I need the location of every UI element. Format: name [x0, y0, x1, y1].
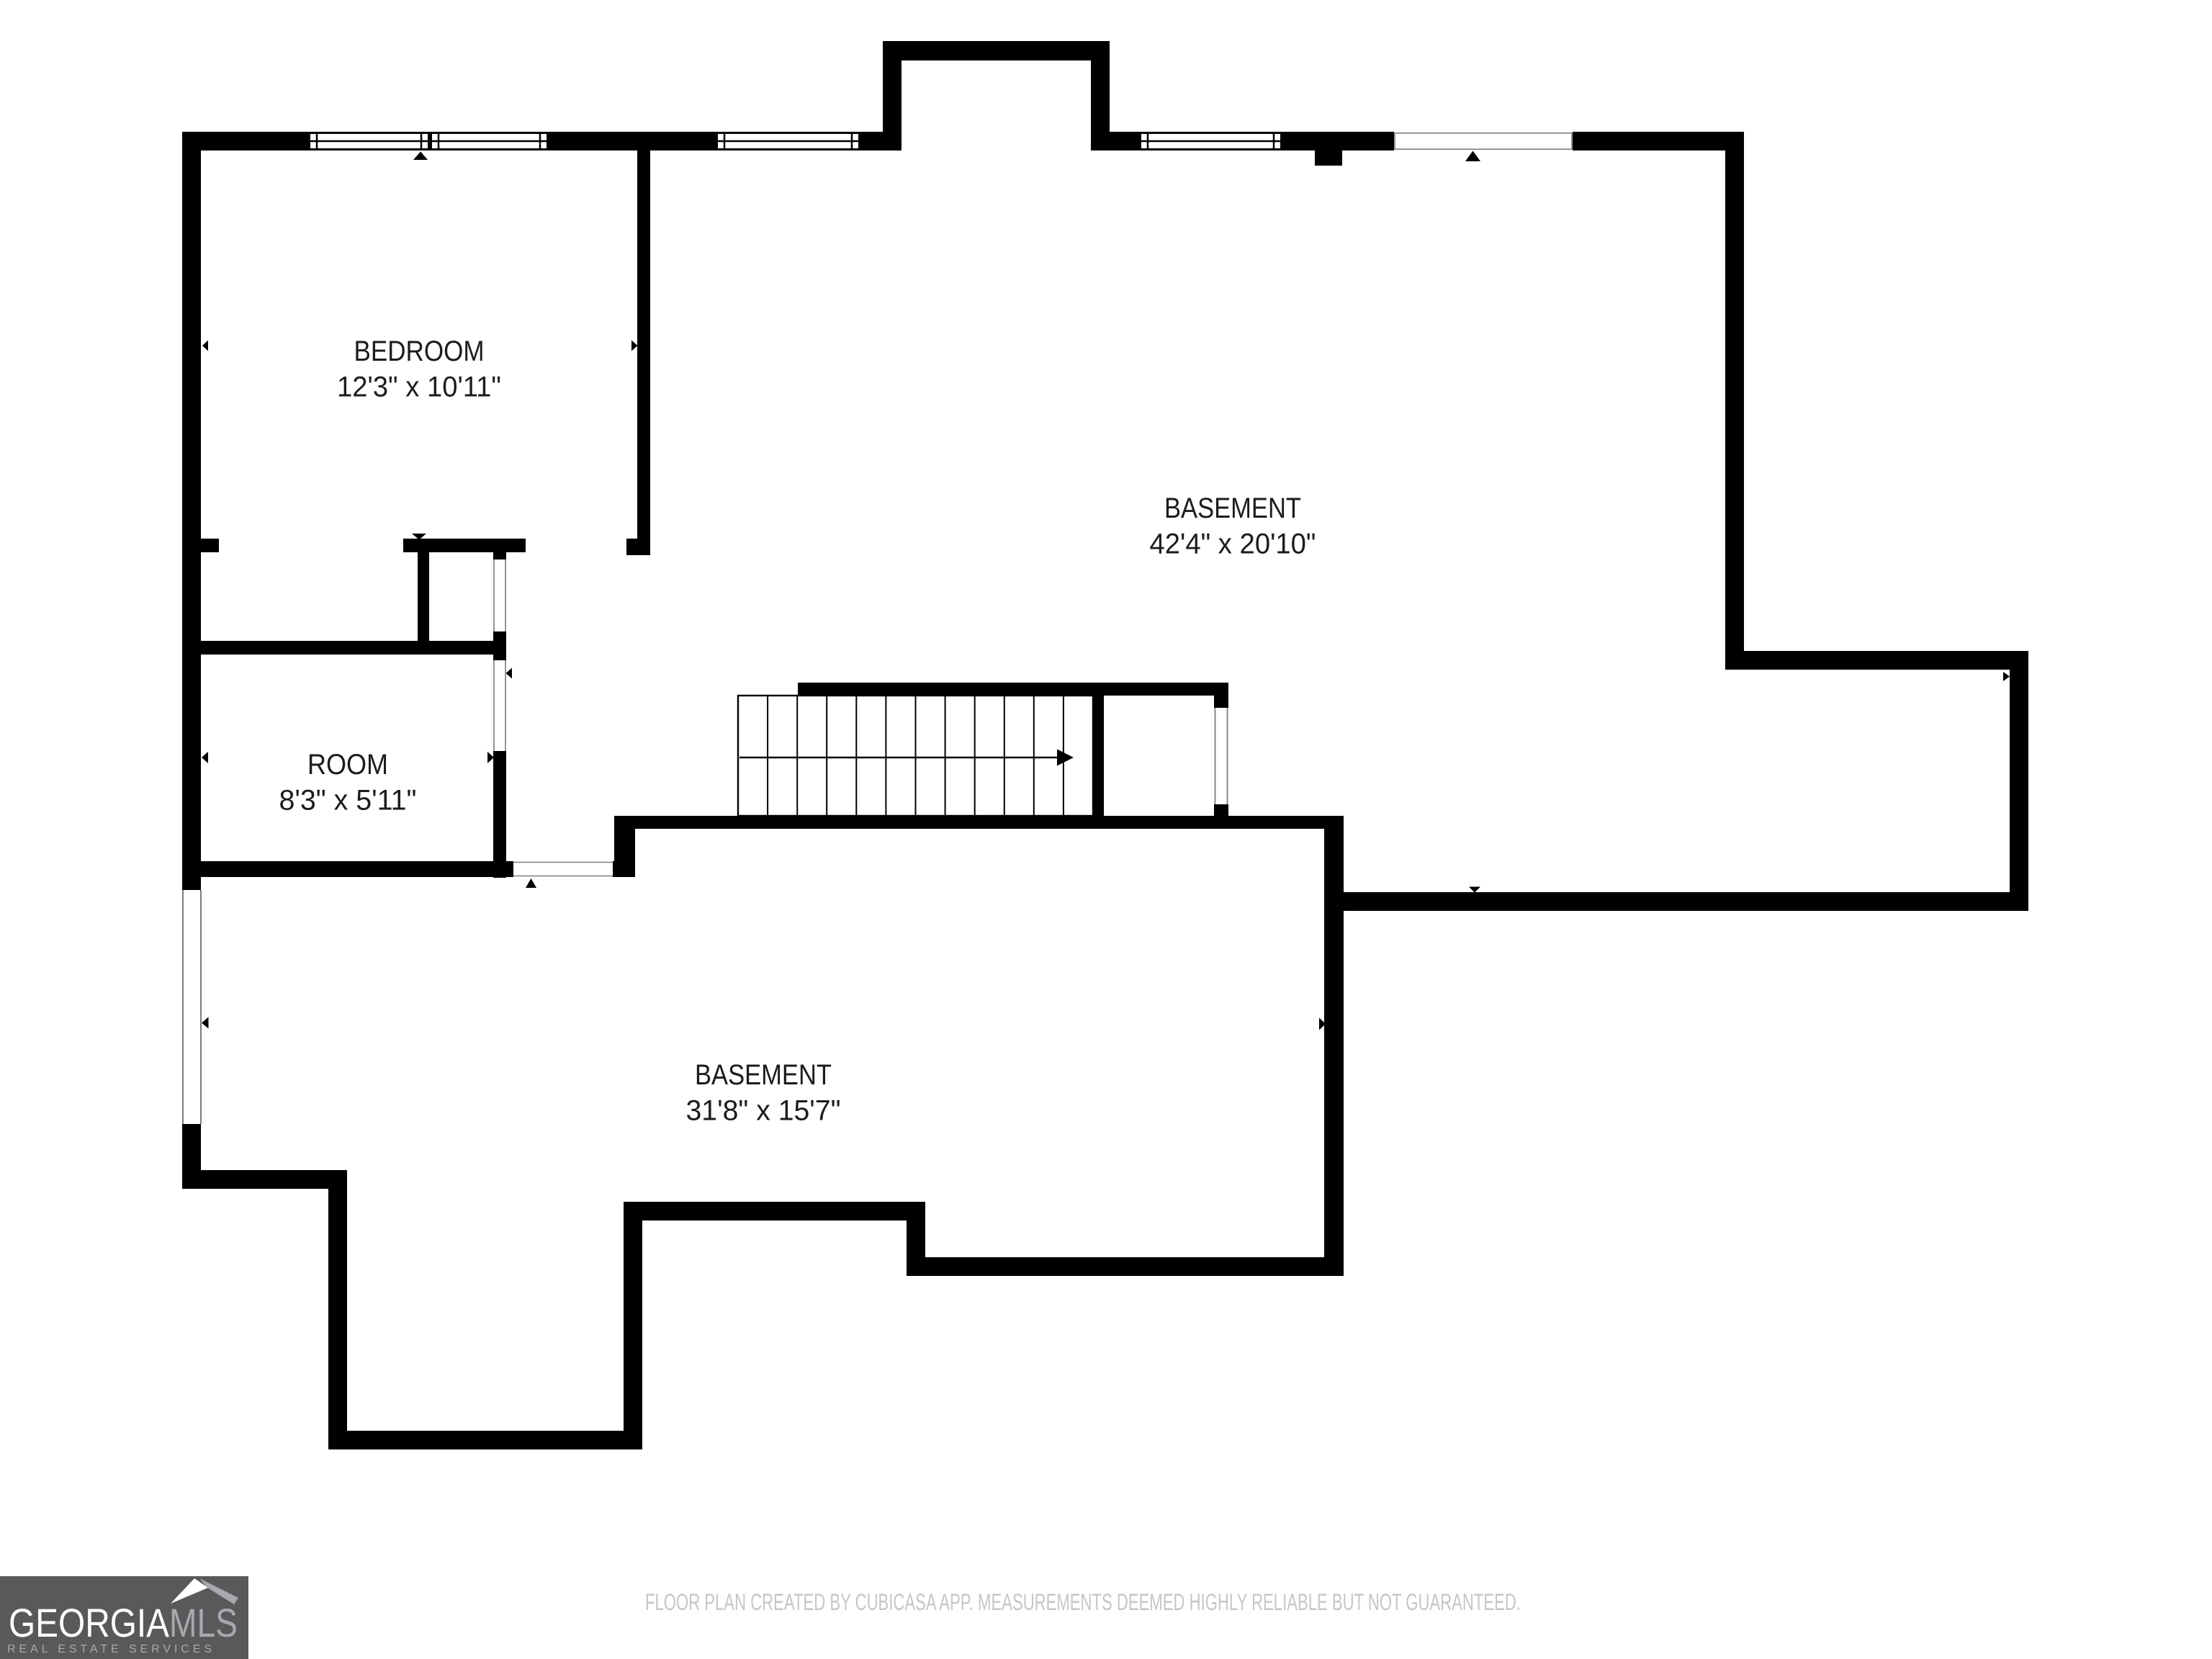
svg-text:REAL ESTATE SERVICES: REAL ESTATE SERVICES	[7, 1643, 216, 1655]
svg-text:8'3" x 5'11": 8'3" x 5'11"	[279, 785, 417, 817]
svg-text:FLOOR PLAN CREATED BY CUBICASA: FLOOR PLAN CREATED BY CUBICASA APP. MEAS…	[645, 1589, 1521, 1615]
svg-text:42'4" x 20'10": 42'4" x 20'10"	[1150, 529, 1316, 560]
svg-text:GEORGIA: GEORGIA	[9, 1600, 170, 1645]
svg-text:BEDROOM: BEDROOM	[354, 336, 485, 367]
svg-text:BASEMENT: BASEMENT	[695, 1059, 832, 1091]
svg-text:ROOM: ROOM	[307, 749, 388, 781]
svg-text:12'3" x 10'11": 12'3" x 10'11"	[337, 372, 501, 403]
svg-text:BASEMENT: BASEMENT	[1164, 493, 1301, 524]
svg-text:31'8" x 15'7": 31'8" x 15'7"	[686, 1095, 841, 1127]
svg-text:MLS: MLS	[169, 1600, 238, 1645]
